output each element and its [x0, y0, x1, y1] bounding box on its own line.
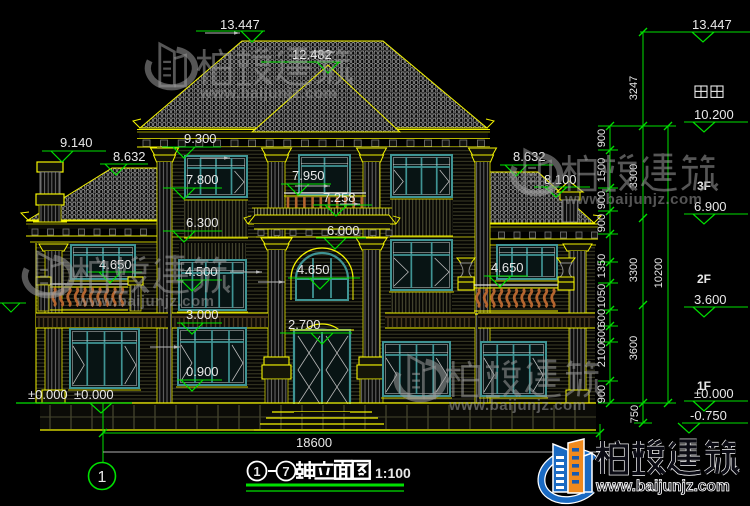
svg-text:900: 900 — [596, 214, 608, 232]
svg-text:www.baijunjz.com: www.baijunjz.com — [76, 293, 214, 310]
svg-text:3300: 3300 — [628, 258, 640, 282]
svg-text:3.600: 3.600 — [694, 292, 727, 307]
svg-text:7.950: 7.950 — [292, 168, 325, 183]
svg-text:1050: 1050 — [596, 284, 608, 308]
svg-text:18600: 18600 — [296, 435, 332, 450]
svg-text:10200: 10200 — [653, 258, 665, 289]
svg-text:0.900: 0.900 — [186, 364, 219, 379]
svg-text:www.baijunjz.com: www.baijunjz.com — [595, 478, 730, 495]
svg-text:13.447: 13.447 — [692, 17, 732, 32]
svg-text:3600: 3600 — [628, 336, 640, 360]
svg-text:6.300: 6.300 — [186, 215, 219, 230]
svg-text:10.200: 10.200 — [694, 107, 734, 122]
svg-text:9.300: 9.300 — [184, 131, 217, 146]
svg-text:www.baijunjz.com: www.baijunjz.com — [448, 397, 586, 414]
svg-text:7.258: 7.258 — [323, 190, 356, 205]
svg-text:www.baijunjz.com: www.baijunjz.com — [199, 85, 337, 102]
svg-text:8.632: 8.632 — [113, 149, 146, 164]
svg-text:4.650: 4.650 — [297, 262, 330, 277]
svg-text:600: 600 — [596, 309, 608, 327]
svg-text:1:100: 1:100 — [375, 465, 411, 481]
svg-text:9.140: 9.140 — [60, 135, 93, 150]
svg-text:-0.750: -0.750 — [690, 408, 727, 423]
svg-text:1350: 1350 — [596, 254, 608, 278]
svg-text:4.650: 4.650 — [491, 260, 524, 275]
svg-text:2.700: 2.700 — [288, 317, 321, 332]
svg-text:7: 7 — [282, 464, 289, 479]
svg-text:2F: 2F — [697, 272, 711, 286]
svg-text:6.000: 6.000 — [327, 223, 360, 238]
svg-text:600: 600 — [596, 325, 608, 343]
svg-text:13.447: 13.447 — [220, 17, 260, 32]
svg-text:1F: 1F — [697, 379, 711, 393]
svg-text:±0.000: ±0.000 — [28, 387, 68, 402]
svg-text:900: 900 — [596, 129, 608, 147]
svg-text:3247: 3247 — [628, 76, 640, 100]
svg-text:±0.000: ±0.000 — [74, 387, 114, 402]
svg-text:1: 1 — [253, 464, 260, 479]
svg-text:1: 1 — [98, 469, 107, 486]
svg-text:www.baijunjz.com: www.baijunjz.com — [564, 191, 702, 208]
svg-text:750: 750 — [629, 405, 641, 423]
svg-text:7.800: 7.800 — [186, 172, 219, 187]
